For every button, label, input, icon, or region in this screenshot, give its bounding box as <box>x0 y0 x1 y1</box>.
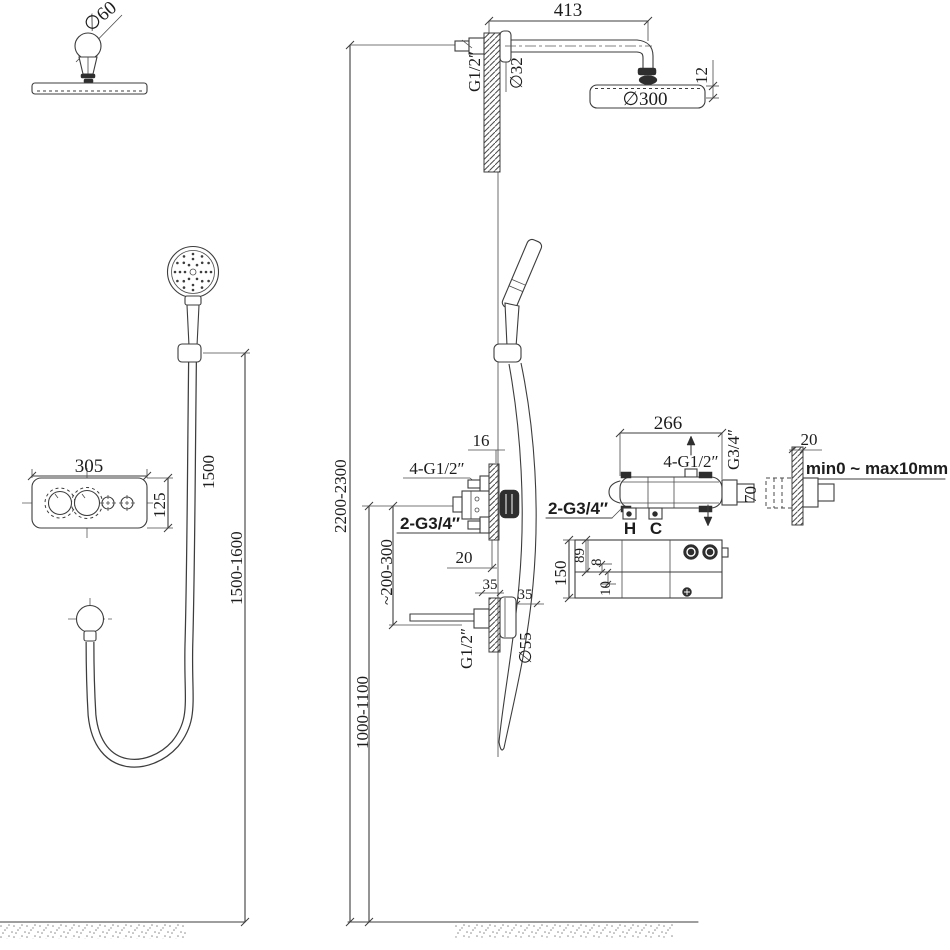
handle-side <box>505 303 519 347</box>
holder-side <box>494 344 521 362</box>
cold-label: C <box>650 519 662 538</box>
valve-front-view: 150 89 8 10 <box>551 536 728 602</box>
valve-nose <box>609 481 620 503</box>
panel-height-label: 125 <box>150 493 169 519</box>
shower-head-disc <box>32 83 147 94</box>
valve-body-side <box>462 491 489 519</box>
outlet-thread-label: G1/2″ <box>457 628 476 669</box>
wall-sleeve-detail: 20 min0 ~ max10mm <box>766 430 948 525</box>
sleeve-behind-wall <box>766 478 792 508</box>
ball-joint <box>75 33 101 59</box>
valve-bottom-port <box>468 521 480 529</box>
wall-hatch-top <box>484 33 500 172</box>
head-diameter-label: ∅300 <box>622 89 667 110</box>
knob-diameter-label: ∅60 <box>80 0 121 36</box>
installation-drawing: ∅60 413 G1/2″ ∅32 <box>0 0 950 950</box>
inlet-ports-label: 2-G3/4″ <box>400 514 460 533</box>
panel-width-label: 305 <box>75 456 104 477</box>
side-coupler <box>722 480 737 505</box>
dim-8-label: 8 <box>589 559 605 567</box>
outlet-nut <box>84 631 96 641</box>
floor-texture-left <box>0 924 186 939</box>
hose-outlet-side: G1/2″ ∅55 <box>410 597 535 669</box>
top-ports-label: 4-G1/2″ <box>663 452 718 471</box>
hand-shower-holder <box>178 344 201 362</box>
arm-diameter-label: ∅32 <box>507 57 526 89</box>
valve-stem-1 <box>684 545 699 560</box>
inlet-ports-label: 2-G3/4″ <box>548 499 608 518</box>
hand-shower-handle <box>187 305 199 346</box>
valve-top-view: 266 4-G1/2″ G3/4″ 70 2-G3/4″ H C <box>546 413 760 538</box>
hose-wall-outlet <box>77 606 104 633</box>
adjust-range-label: min0 ~ max10mm <box>806 459 948 478</box>
wall-thread-label: G1/2″ <box>465 51 484 92</box>
arm-length-label: 413 <box>554 0 583 21</box>
hot-label: H <box>624 519 636 538</box>
collar <box>81 74 95 78</box>
inlet-height-label: 1000-1100 <box>353 676 372 749</box>
hose-length-label: 1500 <box>199 455 218 489</box>
outlet-drop-label: ~200-300 <box>377 539 396 605</box>
shower-column-side-view: 2200-2300 1000-1100 ~200-300 16 4-G1/2″ <box>331 41 544 926</box>
valve-width-label: 266 <box>654 413 683 434</box>
floor-lines <box>0 922 698 939</box>
ball-nut <box>638 68 656 75</box>
dim-89-label: 89 <box>572 548 588 563</box>
dim-10-label: 10 <box>598 581 614 596</box>
valve-stem-2 <box>703 545 718 560</box>
wall-hatch-valve <box>489 464 499 540</box>
sleeve-trim <box>803 478 818 507</box>
hand-shower-unit: 1500 1500-1600 <box>68 247 250 927</box>
side-thread-label: G3/4″ <box>724 429 743 470</box>
floor-texture-right <box>455 924 673 938</box>
valve-knob-side <box>500 490 519 518</box>
overall-height-label: 2200-2300 <box>331 459 350 533</box>
flow-arrow-down <box>704 517 712 526</box>
overhead-shower-top-detail: ∅60 <box>32 0 147 94</box>
knob-2 <box>75 491 100 516</box>
escutcheon-dia-label: ∅55 <box>516 632 535 664</box>
knob-1 <box>49 492 72 515</box>
holder-height-label: 1500-1600 <box>227 531 246 605</box>
sleeve-spigot <box>818 484 834 501</box>
arm-elbow <box>637 40 653 68</box>
trim-gap-label: 20 <box>456 548 473 567</box>
concealed-valve-side: 16 4-G1/2″ 2-G3/4″ <box>397 431 519 540</box>
outlet-escutcheon <box>500 597 516 638</box>
hand-shower-neck <box>185 296 201 305</box>
offset-b-label: 35 <box>518 587 533 603</box>
box-height-label: 150 <box>551 561 570 587</box>
top-ports-label: 4-G1/2″ <box>409 459 464 478</box>
wall-thickness-label: 20 <box>801 430 818 449</box>
shower-hose <box>90 362 193 763</box>
valve-top-port <box>468 480 480 488</box>
wall-hatch-detail <box>792 447 803 525</box>
wall-gap-label: 16 <box>473 431 490 450</box>
drawing-canvas: ∅60 413 G1/2″ ∅32 <box>0 0 950 950</box>
head-edge-label: 12 <box>692 67 711 84</box>
curved-hose-profile <box>499 363 536 750</box>
control-panel-front-view: 305 125 <box>22 456 173 538</box>
flow-arrow-up <box>687 436 695 445</box>
wall-hatch-outlet <box>489 598 500 652</box>
hand-shower-side <box>501 238 543 311</box>
wall-nipple <box>455 41 469 51</box>
depth-label: 70 <box>741 486 760 503</box>
